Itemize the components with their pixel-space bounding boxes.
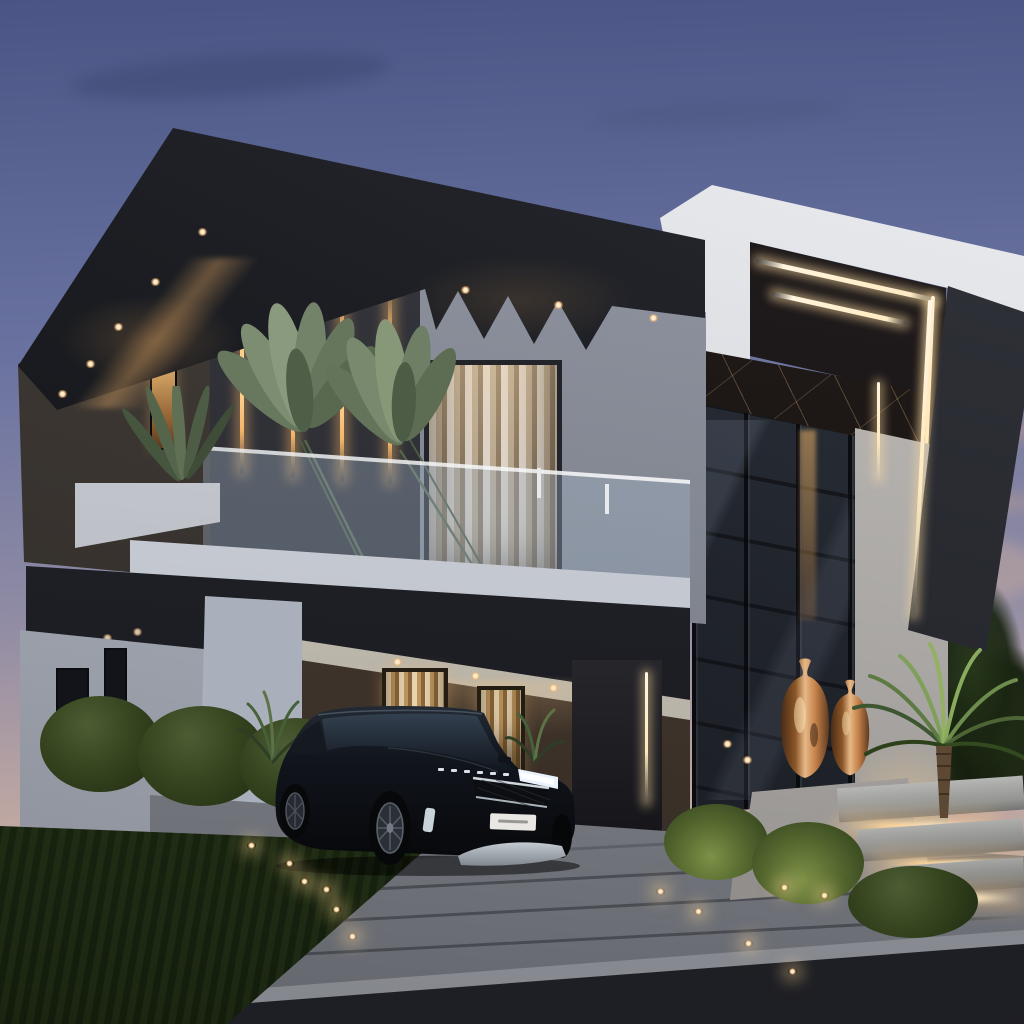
scene-villa-dusk: [0, 0, 1024, 1024]
vignette-overlay: [0, 0, 1024, 1024]
